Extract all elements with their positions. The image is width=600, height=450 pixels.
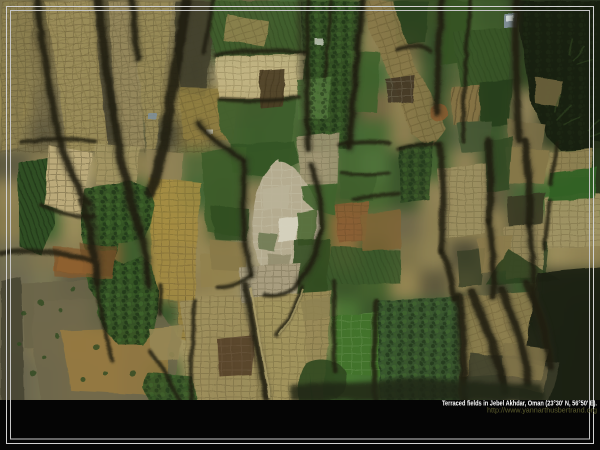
svg-text:http://www.yannarthusbertrand.: http://www.yannarthusbertrand.org [487, 406, 597, 415]
